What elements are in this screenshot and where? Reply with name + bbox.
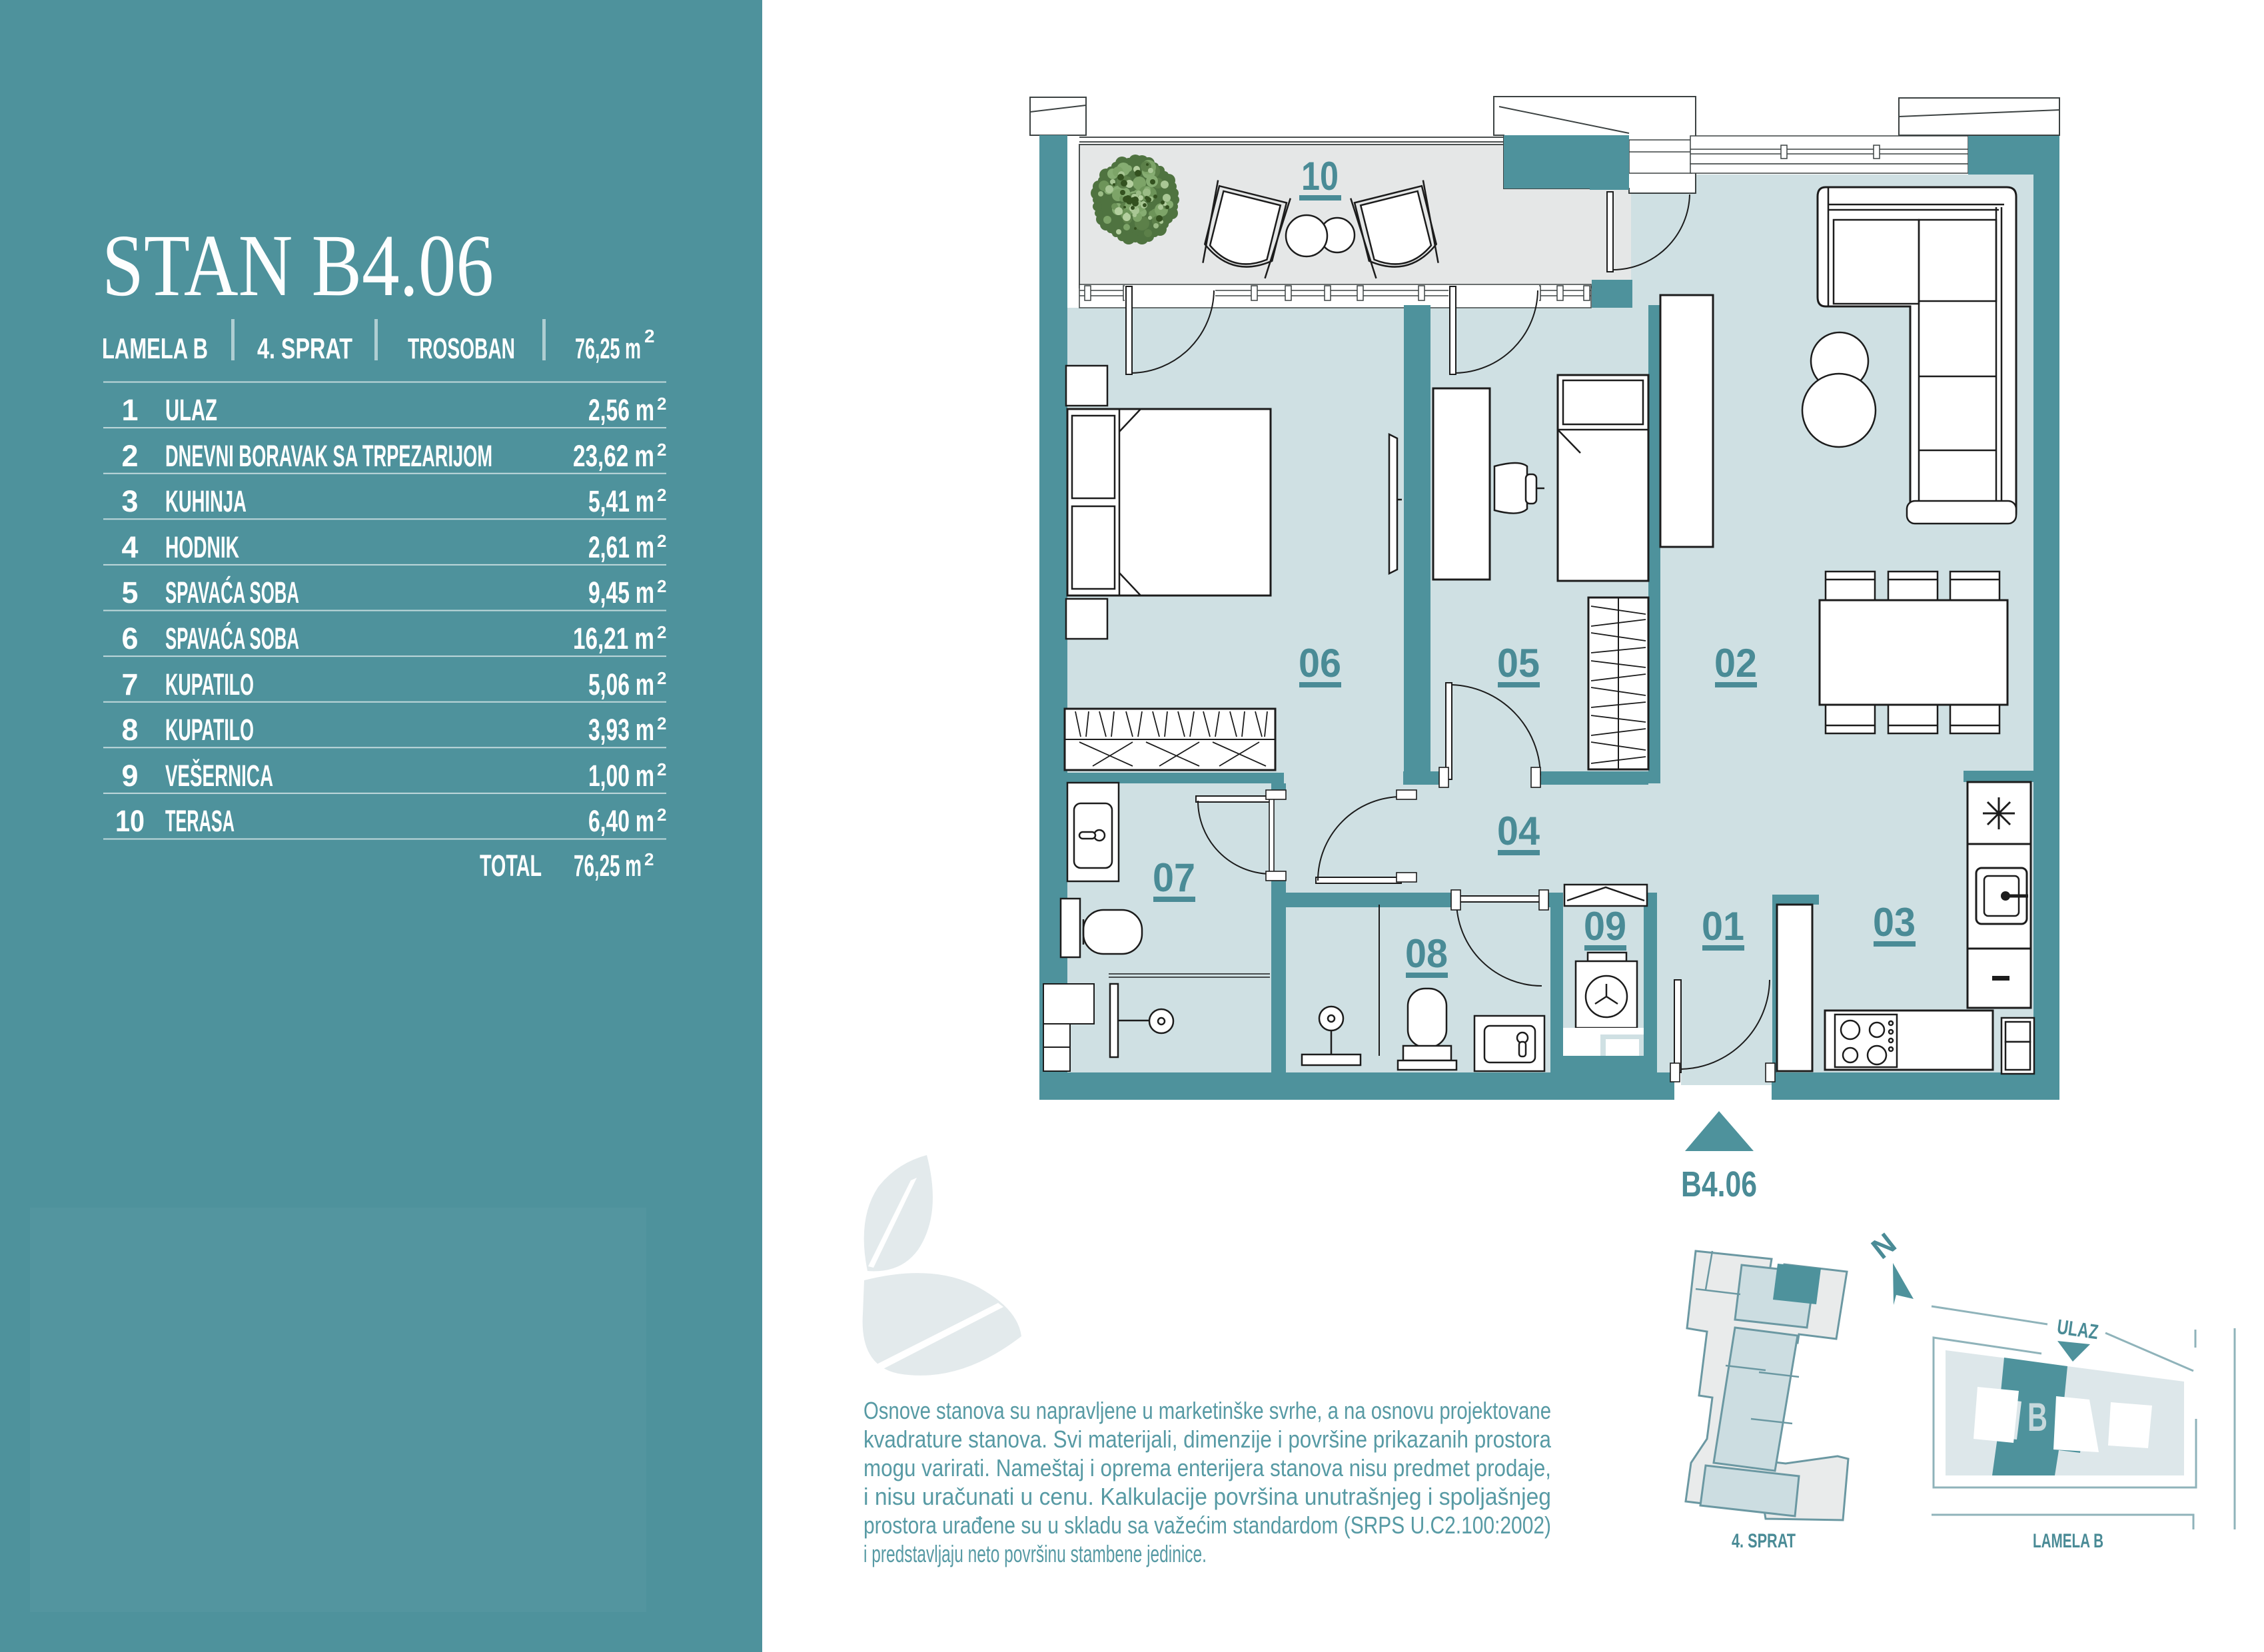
svg-text:2: 2 bbox=[657, 394, 666, 414]
svg-text:SPAVAĆA SOBA: SPAVAĆA SOBA bbox=[165, 576, 299, 610]
svg-text:B: B bbox=[2027, 1395, 2047, 1440]
svg-text:VEŠERNICA: VEŠERNICA bbox=[165, 759, 273, 793]
svg-text:9: 9 bbox=[122, 759, 139, 793]
svg-text:8: 8 bbox=[122, 713, 139, 747]
svg-text:16,21 m: 16,21 m bbox=[573, 621, 654, 655]
svg-text:2: 2 bbox=[657, 485, 666, 505]
svg-text:STAN B4.06: STAN B4.06 bbox=[102, 216, 494, 314]
svg-text:TROSOBAN: TROSOBAN bbox=[408, 332, 515, 365]
svg-text:5,06 m: 5,06 m bbox=[588, 667, 654, 701]
svg-text:23,62 m: 23,62 m bbox=[573, 439, 654, 473]
svg-text:10: 10 bbox=[115, 804, 145, 838]
svg-text:07: 07 bbox=[1153, 855, 1195, 900]
svg-text:02: 02 bbox=[1714, 641, 1757, 685]
svg-text:ULAZ: ULAZ bbox=[165, 393, 217, 427]
svg-text:2: 2 bbox=[657, 576, 666, 596]
svg-text:2: 2 bbox=[657, 713, 666, 733]
svg-text:76,25 m: 76,25 m bbox=[574, 849, 642, 883]
svg-text:B4.06: B4.06 bbox=[1681, 1164, 1757, 1204]
svg-text:4. SPRAT: 4. SPRAT bbox=[1732, 1530, 1796, 1552]
svg-text:76,25 m: 76,25 m bbox=[575, 332, 641, 365]
svg-text:kvadrature stanova. Svi materi: kvadrature stanova. Svi materijali, dime… bbox=[863, 1426, 1552, 1453]
svg-text:1: 1 bbox=[122, 393, 139, 427]
svg-text:2: 2 bbox=[644, 326, 655, 346]
svg-text:6,40 m: 6,40 m bbox=[588, 804, 654, 838]
svg-text:08: 08 bbox=[1405, 931, 1448, 976]
svg-text:KUPATILO: KUPATILO bbox=[165, 667, 254, 701]
svg-text:7: 7 bbox=[122, 667, 139, 701]
svg-text:9,45 m: 9,45 m bbox=[588, 576, 654, 610]
svg-text:prostora urađene su u skladu s: prostora urađene su u skladu sa važećim … bbox=[863, 1511, 1551, 1539]
svg-text:Osnove stanova su napravljene: Osnove stanova su napravljene u marketin… bbox=[863, 1397, 1551, 1424]
svg-text:5,41 m: 5,41 m bbox=[588, 484, 654, 518]
svg-text:4. SPRAT: 4. SPRAT bbox=[257, 332, 352, 365]
svg-text:05: 05 bbox=[1497, 641, 1540, 685]
svg-text:5: 5 bbox=[122, 576, 139, 610]
svg-text:4: 4 bbox=[122, 530, 139, 564]
svg-text:2,56 m: 2,56 m bbox=[588, 393, 654, 427]
svg-text:LAMELA B: LAMELA B bbox=[2033, 1530, 2103, 1552]
svg-text:i nisu uračunati u cenu. Kalku: i nisu uračunati u cenu. Kalkulacije pov… bbox=[863, 1483, 1551, 1510]
svg-text:2,61 m: 2,61 m bbox=[588, 530, 654, 564]
svg-text:2: 2 bbox=[657, 531, 666, 551]
svg-text:SPAVAĆA SOBA: SPAVAĆA SOBA bbox=[165, 621, 299, 655]
svg-text:10: 10 bbox=[1301, 154, 1339, 199]
svg-text:LAMELA B: LAMELA B bbox=[102, 332, 208, 365]
svg-text:N: N bbox=[1866, 1227, 1902, 1266]
svg-text:2: 2 bbox=[657, 759, 666, 779]
svg-text:09: 09 bbox=[1584, 904, 1626, 949]
svg-text:TERASA: TERASA bbox=[165, 804, 235, 838]
svg-text:2: 2 bbox=[657, 668, 666, 688]
svg-text:TOTAL: TOTAL bbox=[480, 849, 542, 883]
svg-text:3,93 m: 3,93 m bbox=[588, 713, 654, 747]
svg-text:2: 2 bbox=[657, 622, 666, 642]
svg-text:6: 6 bbox=[122, 621, 139, 655]
svg-text:03: 03 bbox=[1873, 900, 1916, 945]
svg-text:KUPATILO: KUPATILO bbox=[165, 713, 254, 747]
svg-text:KUHINJA: KUHINJA bbox=[165, 484, 247, 518]
svg-text:06: 06 bbox=[1299, 641, 1341, 685]
svg-text:3: 3 bbox=[122, 484, 139, 518]
svg-text:ULAZ: ULAZ bbox=[2055, 1315, 2099, 1344]
svg-text:2: 2 bbox=[657, 805, 666, 825]
svg-text:DNEVNI BORAVAK SA TRPEZARIJOM: DNEVNI BORAVAK SA TRPEZARIJOM bbox=[165, 439, 492, 473]
svg-text:2: 2 bbox=[657, 440, 666, 460]
svg-text:2: 2 bbox=[122, 439, 139, 473]
svg-text:mogu varirati. Nameštaj i opre: mogu varirati. Nameštaj i oprema enterij… bbox=[863, 1454, 1551, 1481]
svg-text:01: 01 bbox=[1702, 904, 1744, 949]
svg-text:HODNIK: HODNIK bbox=[165, 530, 239, 564]
svg-text:i predstavljaju neto površinu: i predstavljaju neto površinu stambene j… bbox=[863, 1540, 1207, 1567]
svg-text:1,00 m: 1,00 m bbox=[588, 759, 654, 793]
svg-text:2: 2 bbox=[644, 849, 654, 869]
svg-text:04: 04 bbox=[1497, 809, 1540, 853]
